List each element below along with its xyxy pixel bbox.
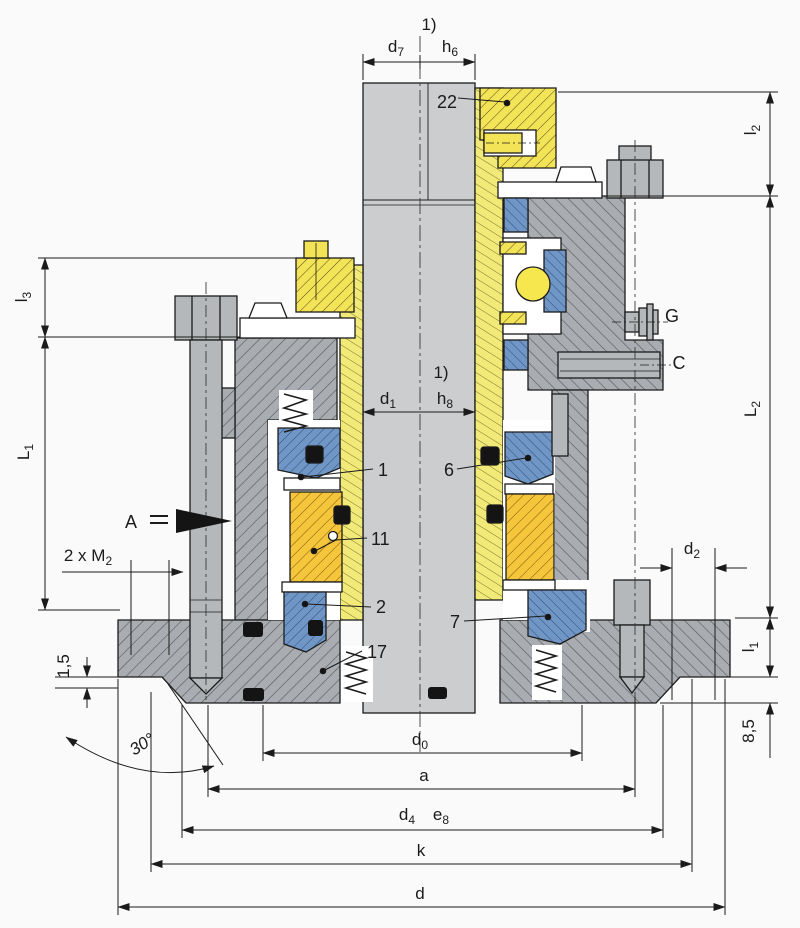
callout-22: 22	[437, 92, 457, 112]
note-ref-top: 1)	[421, 15, 436, 34]
label-a: A	[125, 512, 137, 532]
dim-d2: d2	[684, 539, 700, 561]
label-g: G	[665, 306, 679, 326]
callout-11: 11	[371, 529, 390, 549]
dim-h6: h6	[442, 37, 458, 59]
callout-17: 17	[367, 642, 387, 662]
dim-l1: l1	[739, 641, 761, 652]
dim-d0: d0	[412, 730, 428, 752]
drawing-canvas: 1) d7 h6 1) d1 h8 22 1 11 2 17 6 7 A G C…	[0, 0, 800, 928]
flange-stud-right	[614, 580, 650, 693]
callout-2: 2	[376, 597, 386, 617]
dim-L1: L1	[14, 444, 36, 460]
part-geometry	[118, 83, 730, 713]
callout-7: 7	[450, 612, 460, 632]
dim-d7: d7	[388, 37, 404, 59]
dim-1-5: 1,5	[54, 654, 73, 678]
dim-d: d	[415, 884, 424, 903]
callout-1: 1	[378, 460, 388, 480]
set-screw-collar-left	[296, 241, 354, 312]
dim-L2: L2	[741, 401, 763, 417]
drive-collar-22	[480, 88, 556, 168]
dim-d4: d4	[399, 805, 415, 827]
dim-k: k	[417, 841, 426, 860]
callout-6: 6	[444, 460, 454, 480]
label-c: C	[673, 353, 686, 373]
dim-e8: e8	[433, 805, 449, 827]
dim-l3: l3	[12, 291, 34, 302]
technical-drawing-mechanical-seal-cross-section: 1) d7 h6 1) d1 h8 22 1 11 2 17 6 7 A G C…	[0, 0, 800, 928]
dim-l2: l2	[741, 124, 763, 135]
dim-m2: 2 x M2	[64, 546, 113, 568]
dim-angle-30: 30°	[126, 729, 158, 759]
dim-a: a	[419, 766, 429, 785]
dim-8-5: 8,5	[739, 719, 758, 743]
note-ref-mid: 1)	[433, 363, 448, 382]
pipe-c	[558, 352, 672, 378]
